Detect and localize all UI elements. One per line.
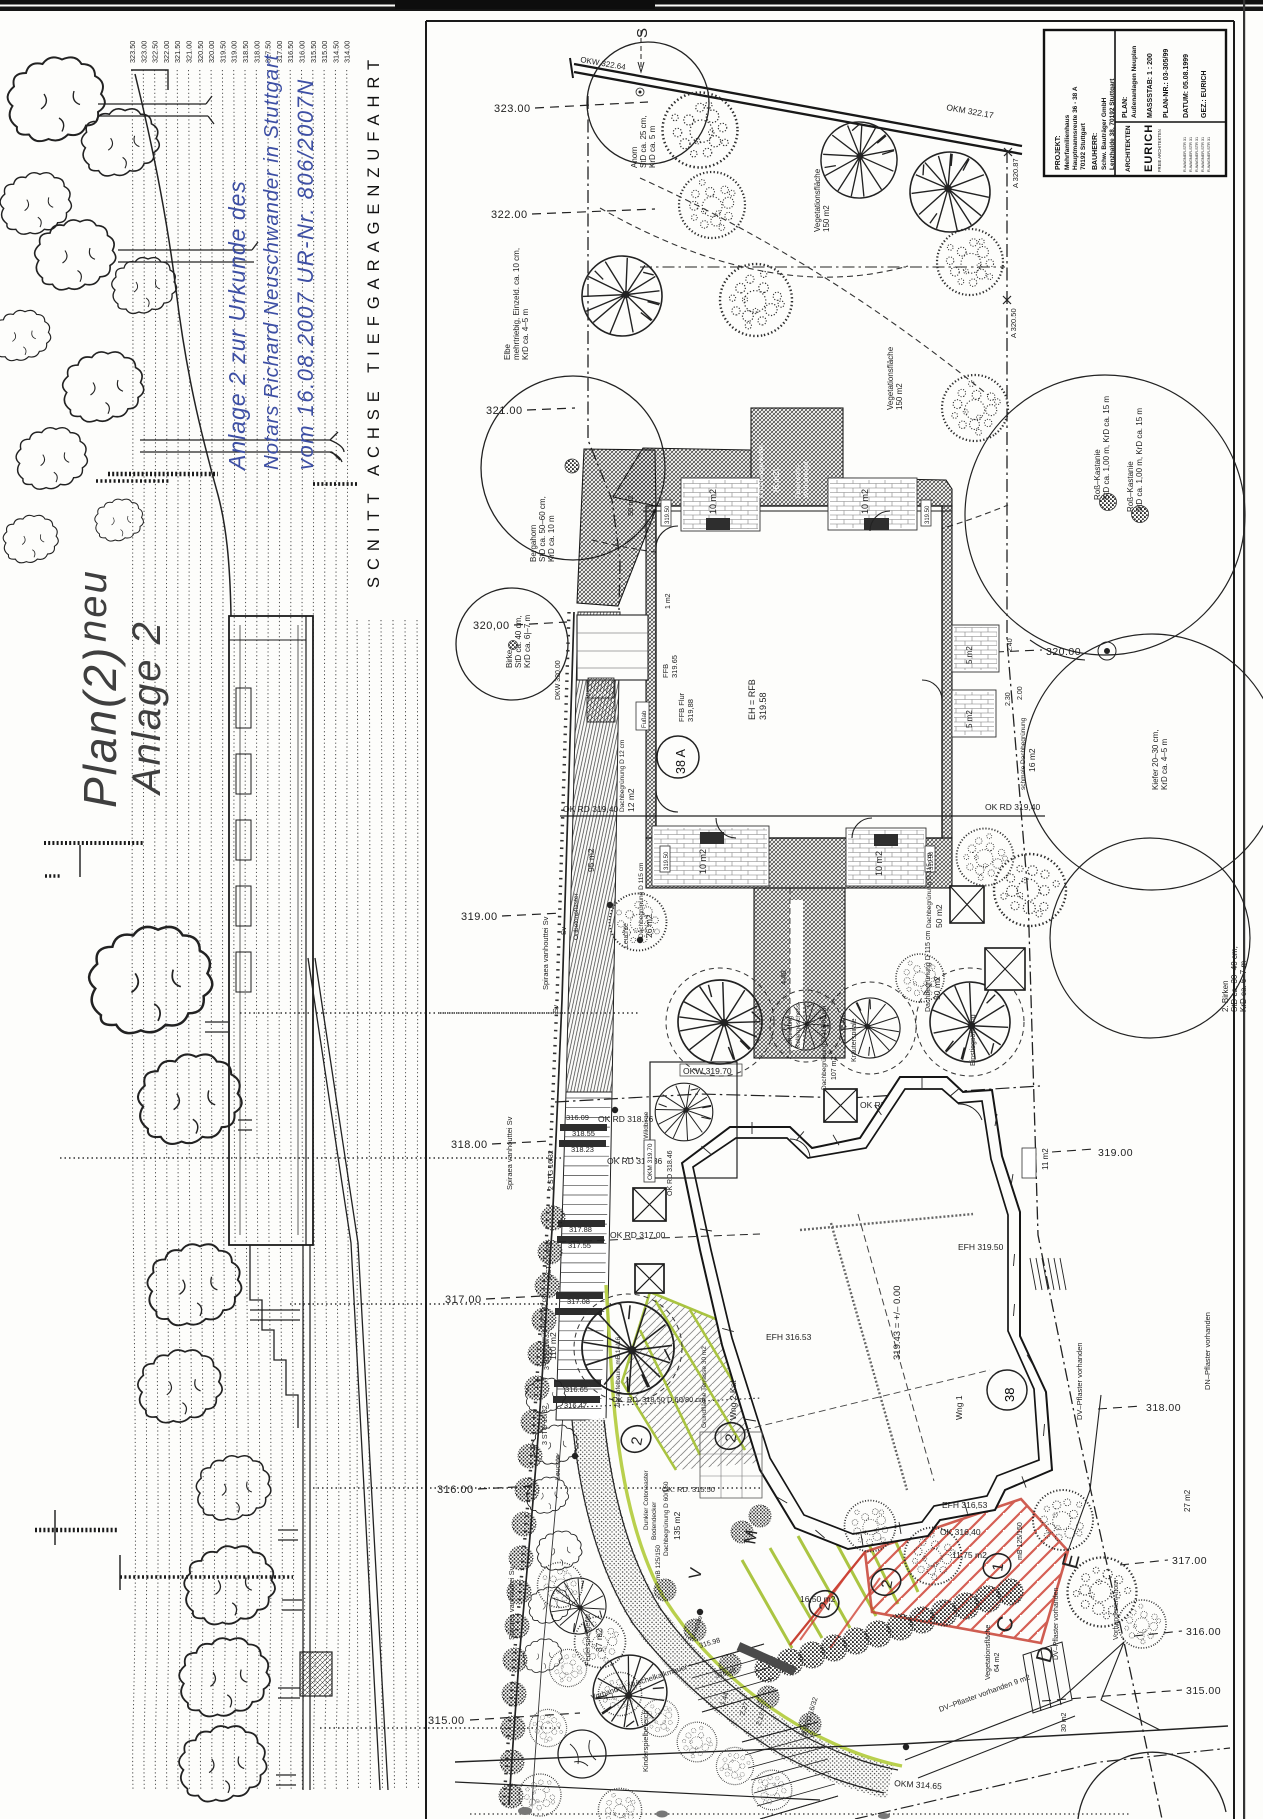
svg-text:10 m2: 10 m2 xyxy=(698,849,708,874)
svg-text:A 320.87: A 320.87 xyxy=(1011,158,1020,188)
svg-text:321.50: 321.50 xyxy=(173,41,182,63)
svg-text:DN–Pflaster vorhanden: DN–Pflaster vorhanden xyxy=(1203,1312,1212,1390)
svg-text:37 m2: 37 m2 xyxy=(594,1628,604,1652)
svg-text:OK RD 318.46: OK RD 318.46 xyxy=(667,1150,674,1196)
svg-text:R-WAGNER-STR 31: R-WAGNER-STR 31 xyxy=(1183,137,1187,172)
svg-text:Wng 1: Wng 1 xyxy=(954,1395,964,1420)
svg-text:OK RD 319,40: OK RD 319,40 xyxy=(985,802,1041,812)
svg-text:EURICH: EURICH xyxy=(1143,124,1155,172)
svg-text:DV–Pflaster vorhanden: DV–Pflaster vorhanden xyxy=(1053,1588,1060,1660)
svg-text:315.00: 315.00 xyxy=(320,41,329,63)
svg-text:KrD ca. 6–7 m: KrD ca. 6–7 m xyxy=(1239,961,1248,1012)
svg-text:S: S xyxy=(634,28,651,38)
svg-text:64 m2: 64 m2 xyxy=(994,1652,1001,1672)
svg-text:Leuchte: Leuchte xyxy=(623,923,630,948)
svg-text:2.30: 2.30 xyxy=(1005,692,1012,706)
svg-text:Birke: Birke xyxy=(505,649,514,668)
svg-text:Einstiegsöffnung: Einstiegsöffnung xyxy=(970,1014,977,1066)
svg-text:StD ca. 30–40 cm,: StD ca. 30–40 cm, xyxy=(1230,946,1239,1012)
svg-text:KrD ca. 6|–7 m: KrD ca. 6|–7 m xyxy=(523,614,532,668)
svg-text:316.47: 316.47 xyxy=(564,1401,587,1410)
svg-text:Kiefer 20–30 cm,: Kiefer 20–30 cm, xyxy=(1151,730,1160,790)
svg-text:317.88: 317.88 xyxy=(569,1225,592,1234)
svg-text:EFH 316.53: EFH 316.53 xyxy=(766,1332,812,1342)
svg-text:320.00: 320.00 xyxy=(207,41,216,63)
svg-text:Bodendecker: Bodendecker xyxy=(651,1501,658,1540)
svg-text:2.40: 2.40 xyxy=(1007,638,1014,652)
svg-text:MASSSTAB: 1 : 200: MASSSTAB: 1 : 200 xyxy=(1147,53,1154,118)
svg-text:mB 125/150: mB 125/150 xyxy=(1017,1522,1024,1560)
svg-text:107 m2: 107 m2 xyxy=(831,1057,838,1080)
svg-text:Lenzhalde 38, 70192 Stuttgart: Lenzhalde 38, 70192 Stuttgart xyxy=(1109,78,1116,170)
svg-text:mehrtriebig, Einzeld. ca. 10 c: mehrtriebig, Einzeld. ca. 10 cm, xyxy=(512,248,521,360)
svg-text:Bergahorn: Bergahorn xyxy=(529,525,538,562)
svg-text:27 m2: 27 m2 xyxy=(1183,1489,1192,1512)
svg-text:314.50: 314.50 xyxy=(331,41,340,63)
svg-text:PROJEKT:: PROJEKT: xyxy=(1055,135,1062,170)
svg-text:PLAN-NR.: 03-305/99: PLAN-NR.: 03-305/99 xyxy=(1163,49,1170,118)
svg-text:Kinderspielbereich: Kinderspielbereich xyxy=(641,1710,650,1772)
svg-text:319.50: 319.50 xyxy=(664,851,670,870)
svg-text:317.08: 317.08 xyxy=(567,1297,590,1306)
svg-text:PLAN:: PLAN: xyxy=(1122,97,1129,118)
svg-text:Dachbegrünung D 115 cm: Dachbegrünung D 115 cm xyxy=(638,863,645,938)
svg-text:318.50: 318.50 xyxy=(241,41,250,63)
svg-text:317.55: 317.55 xyxy=(568,1241,591,1250)
svg-text:KrD ca. 4–5 m: KrD ca. 4–5 m xyxy=(1160,739,1169,790)
svg-text:Vegetationsfläche: Vegetationsfläche xyxy=(886,346,895,410)
svg-text:DV–Pflaster vorhanden: DV–Pflaster vorhanden xyxy=(1075,1342,1084,1420)
svg-text:316.50: 316.50 xyxy=(286,41,295,63)
svg-text:OK. RD. 318.50 D 60/80 cm: OK. RD. 318.50 D 60/80 cm xyxy=(612,1395,705,1404)
svg-text:OK RD 317.00: OK RD 317.00 xyxy=(610,1230,666,1240)
svg-text:150 m2: 150 m2 xyxy=(822,205,831,232)
svg-text:322.00: 322.00 xyxy=(162,41,171,63)
svg-text:Plan(2): Plan(2) xyxy=(74,646,126,808)
svg-text:Mehrfamilienhaus: Mehrfamilienhaus xyxy=(1064,114,1071,170)
svg-text:322.00: 322.00 xyxy=(491,209,528,221)
svg-text:Wohnanlage: Wohnanlage xyxy=(803,461,810,498)
svg-text:5 m2: 5 m2 xyxy=(965,710,974,728)
svg-text:KrD ca. 10 m: KrD ca. 10 m xyxy=(547,515,556,562)
svg-text:12 m2: 12 m2 xyxy=(626,788,636,812)
svg-text:315.00: 315.00 xyxy=(428,1715,465,1727)
svg-text:Dachbegrünung D 12 cm: Dachbegrünung D 12 cm xyxy=(619,740,626,812)
svg-text:315.50: 315.50 xyxy=(309,41,318,63)
svg-text:135 m2: 135 m2 xyxy=(672,1511,682,1540)
svg-text:StD ca. 40 cm,: StD ca. 40 cm, xyxy=(514,616,523,668)
svg-text:Hauptmannsreute 36 - 38 A: Hauptmannsreute 36 - 38 A xyxy=(1072,86,1079,170)
svg-text:319.50: 319.50 xyxy=(925,505,931,524)
svg-text:320,00: 320,00 xyxy=(473,620,510,632)
svg-text:318.00: 318.00 xyxy=(451,1139,488,1151)
svg-text:319.00: 319.00 xyxy=(230,41,239,63)
svg-text:Federspielgerät: Federspielgerät xyxy=(583,1613,592,1666)
svg-text:11,75 m2: 11,75 m2 xyxy=(952,1550,987,1560)
svg-text:Fußab: Fußab xyxy=(642,710,648,728)
svg-text:323.00: 323.00 xyxy=(494,103,531,115)
svg-text:DATUM: 05.08.1999: DATUM: 05.08.1999 xyxy=(1183,54,1190,118)
svg-text:verbindung: verbindung xyxy=(787,1015,794,1048)
svg-text:FFB: FFB xyxy=(661,664,670,678)
svg-text:110 m2: 110 m2 xyxy=(548,1332,558,1360)
svg-text:30 m2: 30 m2 xyxy=(1061,1712,1068,1732)
svg-text:R-WAGNER-STR 31: R-WAGNER-STR 31 xyxy=(1207,137,1211,172)
svg-text:vom 16.08.2007 UR-Nr. 806/200: vom 16.08.2007 UR-Nr. 806/2007N xyxy=(293,78,318,470)
svg-text:R-WAGNER-STR 31: R-WAGNER-STR 31 xyxy=(1201,137,1205,172)
svg-text:316.00: 316.00 xyxy=(437,1484,474,1496)
svg-text:FFB Flur: FFB Flur xyxy=(677,692,686,722)
svg-text:316.00: 316.00 xyxy=(298,41,307,63)
svg-text:DKW 320.00: DKW 320.00 xyxy=(555,660,562,700)
svg-text:319.50: 319.50 xyxy=(665,505,671,524)
svg-text:1 m2: 1 m2 xyxy=(665,593,672,609)
svg-text:Spiraea vanhouttei Sv: Spiraea vanhouttei Sv xyxy=(541,916,550,990)
svg-text:Anlage 2: Anlage 2 xyxy=(125,620,169,796)
svg-text:ARCHITEKTEN: ARCHITEKTEN xyxy=(1125,125,1132,172)
svg-text:EFH 316,53: EFH 316,53 xyxy=(942,1500,988,1510)
svg-text:323.50: 323.50 xyxy=(128,41,137,63)
svg-text:316.65: 316.65 xyxy=(565,1385,588,1394)
svg-text:Spiraea vanhouttei Sv: Spiraea vanhouttei Sv xyxy=(505,1116,514,1190)
svg-text:EFH 319.50: EFH 319.50 xyxy=(958,1242,1004,1252)
svg-text:Feuerwehr-: Feuerwehr- xyxy=(795,465,802,498)
svg-text:70192 Stuttgart: 70192 Stuttgart xyxy=(1080,122,1087,170)
svg-text:Elbe: Elbe xyxy=(503,343,512,360)
svg-text:OK 316,40: OK 316,40 xyxy=(940,1527,981,1537)
svg-text:Sv: Sv xyxy=(561,926,568,935)
svg-text:EH = RFB: EH = RFB xyxy=(747,679,757,720)
svg-text:2 STG 16/32: 2 STG 16/32 xyxy=(548,1150,555,1190)
svg-text:FREIE ARCHITEKTEN: FREIE ARCHITEKTEN xyxy=(1157,129,1162,172)
svg-text:Dachbegrünung D 115/80 cm: Dachbegrünung D 115/80 cm xyxy=(821,1006,828,1090)
svg-text:50 m2: 50 m2 xyxy=(934,904,944,928)
svg-text:KrD ca. 4–5 m: KrD ca. 4–5 m xyxy=(521,309,530,360)
svg-text:50 m2: 50 m2 xyxy=(932,976,942,1000)
svg-text:319,88: 319,88 xyxy=(686,699,695,722)
svg-text:150 m2: 150 m2 xyxy=(895,383,904,410)
svg-text:Anlage 2 zur Urkunde des: Anlage 2 zur Urkunde des xyxy=(224,180,250,472)
svg-text:2.00: 2.00 xyxy=(1017,686,1024,700)
svg-text:GEZ.: EURICH: GEZ.: EURICH xyxy=(1201,71,1208,118)
svg-text:319.58: 319.58 xyxy=(758,692,768,720)
svg-text:Kinderwagenkeller: Kinderwagenkeller xyxy=(758,444,765,498)
svg-text:Vorhandener Ahorn: Vorhandener Ahorn xyxy=(1113,1580,1120,1640)
svg-text:OKM 319.70: OKM 319.70 xyxy=(647,1143,654,1180)
svg-text:16 m2: 16 m2 xyxy=(1027,748,1037,772)
svg-text:Ortbetonpflaster: Ortbetonpflaster xyxy=(573,893,580,940)
svg-text:Dunkler Cotoneaster: Dunkler Cotoneaster xyxy=(643,1470,650,1530)
svg-text:StD ca. 1,00 m, KrD ca. 15 m: StD ca. 1,00 m, KrD ca. 15 m xyxy=(1135,408,1144,512)
svg-text:(6 m2): (6 m2) xyxy=(772,469,781,492)
svg-text:319.00: 319.00 xyxy=(461,911,498,923)
svg-text:Ahorn: Ahorn xyxy=(630,147,639,168)
svg-text:38: 38 xyxy=(1002,1388,1017,1402)
svg-text:10 m2: 10 m2 xyxy=(860,489,870,514)
svg-text:314.00: 314.00 xyxy=(343,41,352,63)
svg-text:2. Birken: 2. Birken xyxy=(1221,980,1230,1012)
svg-text:OK RD 319,40: OK RD 319,40 xyxy=(563,804,619,814)
svg-text:Dachbegrünung D 80 cm: Dachbegrünung D 80 cm xyxy=(541,1294,548,1366)
svg-text:Leuchte: Leuchte xyxy=(555,1455,562,1480)
svg-text:10 m2: 10 m2 xyxy=(874,851,884,876)
svg-text:319.65: 319.65 xyxy=(670,655,679,678)
svg-text:316.00: 316.00 xyxy=(1186,1626,1221,1638)
svg-text:BAUHERR:: BAUHERR: xyxy=(1092,133,1099,170)
svg-text:323.00: 323.00 xyxy=(139,41,148,63)
svg-text:317.00: 317.00 xyxy=(1172,1555,1207,1567)
svg-text:Außenanlagen Neuplan: Außenanlagen Neuplan xyxy=(1131,46,1138,118)
svg-text:95 m2: 95 m2 xyxy=(586,848,596,872)
svg-text:StD ca. 1,00 m, KrD ca. 15 m: StD ca. 1,00 m, KrD ca. 15 m xyxy=(1102,396,1111,500)
svg-text:322.50: 322.50 xyxy=(151,41,160,63)
svg-text:11 m2: 11 m2 xyxy=(1041,1148,1050,1170)
svg-text:50 m2: 50 m2 xyxy=(626,495,635,516)
svg-text:Schw. Bauträger GmbH: Schw. Bauträger GmbH xyxy=(1101,97,1108,170)
svg-text:OK. RD. 315.50: OK. RD. 315.50 xyxy=(662,1485,715,1494)
svg-text:Roß–Kastanie: Roß–Kastanie xyxy=(1093,449,1102,500)
svg-text:315.00: 315.00 xyxy=(1186,1685,1221,1697)
svg-text:321.00: 321.00 xyxy=(185,41,194,63)
svg-text:Vegetationsfläche: Vegetationsfläche xyxy=(813,168,822,232)
svg-text:318.23: 318.23 xyxy=(571,1145,594,1154)
svg-text:Zierapfelbaum mB 14/16: Zierapfelbaum mB 14/16 xyxy=(615,1336,622,1408)
svg-text:320.50: 320.50 xyxy=(196,41,205,63)
svg-text:R-WAGNER-STR 31: R-WAGNER-STR 31 xyxy=(1195,137,1199,172)
svg-text:neu: neu xyxy=(71,569,115,642)
svg-text:319.50: 319.50 xyxy=(218,41,227,63)
svg-text:SCNITT ACHSE TIEFGARAGENZUFAHR: SCNITT ACHSE TIEFGARAGENZUFAHRT xyxy=(365,53,383,588)
svg-text:318.55: 318.55 xyxy=(572,1129,595,1138)
svg-text:Grundfläche Terrasse 30 m2: Grundfläche Terrasse 30 m2 xyxy=(701,1346,708,1428)
svg-text:38 A: 38 A xyxy=(674,748,688,774)
svg-text:319.00: 319.00 xyxy=(1098,1147,1133,1159)
svg-text:Dachbegrünung D 115 cm: Dachbegrünung D 115 cm xyxy=(925,931,932,1012)
svg-text:Sv: Sv xyxy=(553,1004,560,1013)
svg-text:317.00: 317.00 xyxy=(445,1294,482,1306)
svg-text:mB 125/150: mB 125/150 xyxy=(655,1545,662,1580)
svg-text:Notars Richard Neuschwander in: Notars Richard Neuschwander in Stuttgart xyxy=(260,54,283,470)
svg-text:316.09: 316.09 xyxy=(566,1113,589,1122)
svg-text:5 m2: 5 m2 xyxy=(965,646,974,664)
svg-text:Kräuterspirale: Kräuterspirale xyxy=(851,1018,858,1062)
svg-text:Vegetationsfläche: Vegetationsfläche xyxy=(985,1625,992,1680)
svg-text:4.40: 4.40 xyxy=(779,970,788,985)
svg-text:schmale Dachbegrünung: schmale Dachbegrünung xyxy=(1020,717,1027,790)
svg-text:Roß–Kastanie: Roß–Kastanie xyxy=(1126,461,1135,512)
svg-text:Dachbegrünung D 115 cm: Dachbegrünung D 115 cm xyxy=(926,853,933,928)
svg-text:10 m2: 10 m2 xyxy=(708,489,718,514)
svg-text:A 320.50: A 320.50 xyxy=(1009,308,1018,338)
svg-text:OKW 319.70: OKW 319.70 xyxy=(683,1066,732,1076)
svg-text:KrD ca. 5 m: KrD ca. 5 m xyxy=(648,125,657,168)
svg-text:StD ca. 25 cm,: StD ca. 25 cm, xyxy=(639,116,648,168)
svg-text:R-WAGNER-STR 31: R-WAGNER-STR 31 xyxy=(1189,137,1193,172)
svg-text:StD ca. 50–60 cm,: StD ca. 50–60 cm, xyxy=(538,496,547,562)
svg-text:318.00: 318.00 xyxy=(1146,1402,1181,1414)
svg-text:319.43 = +/– 0.00: 319.43 = +/– 0.00 xyxy=(892,1286,903,1360)
